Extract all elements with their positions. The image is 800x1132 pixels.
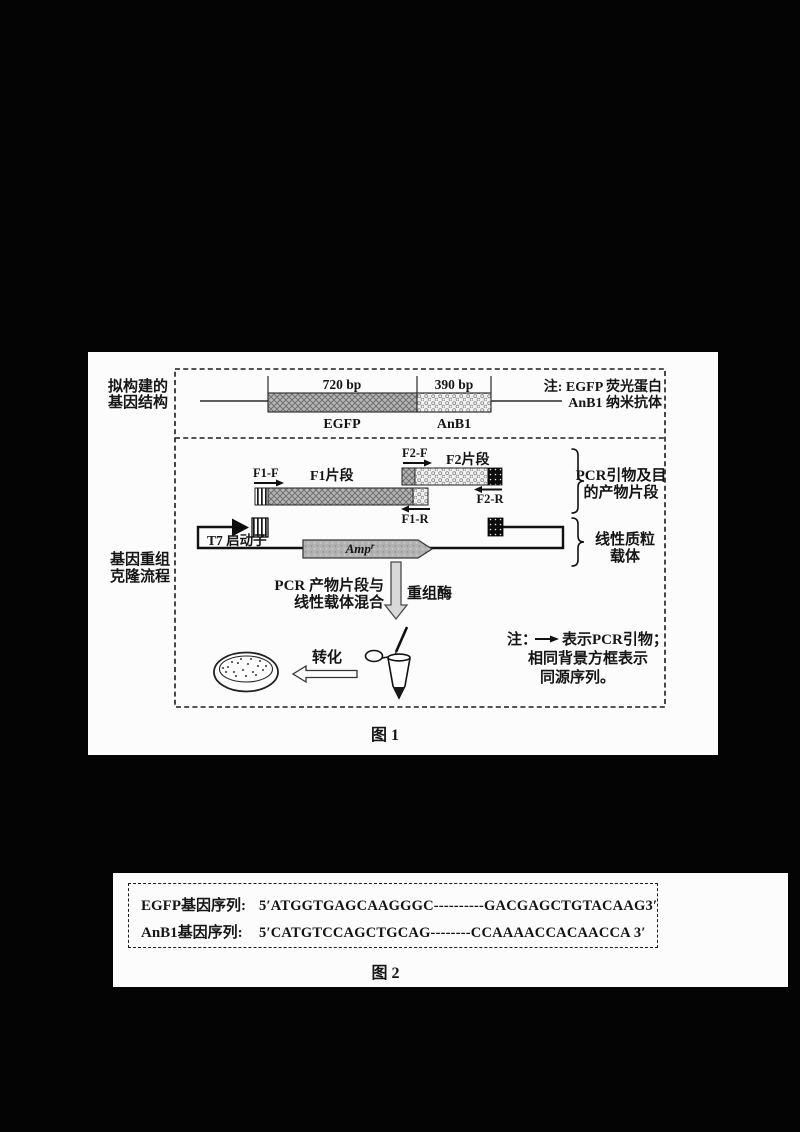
figure2-caption: 图 2 [113,959,658,983]
f2-fragment-label: F2片段 [446,451,490,468]
petri-dish [214,653,278,692]
mix-label-l1: PCR 产物片段与 [274,576,384,594]
linear-vector-brace [572,518,584,566]
gene-structure-section: 720 bp 390 bp EGFP AnB1 注: EGFP 荧光蛋白 AnB… [200,376,663,432]
anb1-bp-label: 390 bp [435,377,474,392]
f2r-primer-label: F2-R [476,492,504,506]
note-line3: 同源序列。 [540,668,615,686]
pipette-icon [396,627,407,652]
svg-text:基因结构: 基因结构 [107,393,168,411]
svg-text:AnB1 纳米抗体: AnB1 纳米抗体 [568,394,663,411]
f2f-primer-label: F2-F [402,446,428,460]
tube-open-cap [366,651,383,662]
anb1-sequence-row: AnB1基因序列:5′CATGTCCAGCTGCAG--------CCAAAA… [141,921,646,942]
petri-dish-inner [220,656,273,682]
anb1-sequence-value: 5′CATGTCCAGCTGCAG--------CCAAAACCACAACCA… [259,925,646,941]
vector-homology-black-box [488,518,503,536]
svg-text:注: EGFP 荧光蛋白: 注: EGFP 荧光蛋白 [544,378,662,395]
scanned-exam-page: { "page": { "background": "#040404", "pa… [0,0,800,1132]
row-label-cloning-process: 基因重组 克隆流程 [109,550,170,585]
egfp-gene-box [268,393,417,412]
microcentrifuge-tube [366,627,411,698]
figure1-panel: 拟构建的 基因结构 基因重组 克隆流程 720 bp 390 bp EGFP A… [88,352,718,755]
linear-vector-label-l1: 线性质粒 [595,530,655,548]
note-prefix: 注： [507,630,537,648]
amp-gene-label: Ampr [345,541,375,556]
down-arrow [385,562,407,619]
note-line1: 表示PCR引物； [562,630,668,648]
mix-label-l2: 线性载体混合 [294,593,385,611]
figure1-caption: 图 1 [371,726,399,744]
f1-homology-vector-end [255,488,268,505]
anb1-name-label: AnB1 [437,417,471,432]
row-label-gene-structure: 拟构建的 基因结构 [107,377,168,411]
transformation-step: 转化 [293,648,357,682]
figure1-legend-note: 注： 表示PCR引物； 相同背景方框表示 同源序列。 [507,630,668,686]
egfp-bp-label: 720 bp [323,377,362,392]
f1-fragment-label: F1片段 [310,467,354,484]
recombination-step: PCR 产物片段与 线性载体混合 重组酶 [274,562,452,619]
figure1-diagram: 拟构建的 基因结构 基因重组 克隆流程 720 bp 390 bp EGFP A… [88,352,718,755]
linear-vector-label-l2: 载体 [610,547,641,565]
gene-structure-note: 注: EGFP 荧光蛋白 AnB1 纳米抗体 [544,378,663,411]
anb1-sequence-label: AnB1基因序列: [141,921,259,942]
left-arrow [293,666,357,682]
anb1-gene-box [417,393,491,412]
f1-homology-anb1-end [413,488,428,505]
svg-text:克隆流程: 克隆流程 [110,567,170,585]
pcr-products-label-l1: PCR引物及目 [576,466,667,484]
egfp-sequence-row: EGFP基因序列:5′ATGGTGAGCAAGGGC----------GACG… [141,894,657,915]
egfp-name-label: EGFP [323,417,361,432]
tube-rim [388,654,410,661]
note-line2: 相同背景方框表示 [528,649,648,667]
pcr-fragments-section: F2-F F2片段 F2-R F1-F F1片段 F1-R PCR引物及目 的产… [253,446,666,526]
f2-homology-vector-end [488,468,502,485]
egfp-sequence-label: EGFP基因序列: [141,894,259,915]
t7-promoter-label: T7 启动子 [207,532,267,548]
f1f-primer-label: F1-F [253,466,279,480]
sequence-dashed-box: EGFP基因序列:5′ATGGTGAGCAAGGGC----------GACG… [128,883,658,948]
f2-body-anb1 [415,468,488,485]
transform-label: 转化 [312,648,342,666]
f2-homology-egfp-end [402,468,415,485]
egfp-sequence-value: 5′ATGGTGAGCAAGGGC----------GACGAGCTGTACA… [259,898,657,914]
svg-text:基因重组: 基因重组 [109,550,170,568]
figure2-panel: EGFP基因序列:5′ATGGTGAGCAAGGGC----------GACG… [113,873,788,987]
f1r-primer-label: F1-R [401,512,429,526]
f1-body-egfp [268,488,413,505]
pcr-products-label-l2: 的产物片段 [583,483,658,501]
enzyme-label: 重组酶 [407,584,452,602]
svg-text:拟构建的: 拟构建的 [108,377,168,395]
